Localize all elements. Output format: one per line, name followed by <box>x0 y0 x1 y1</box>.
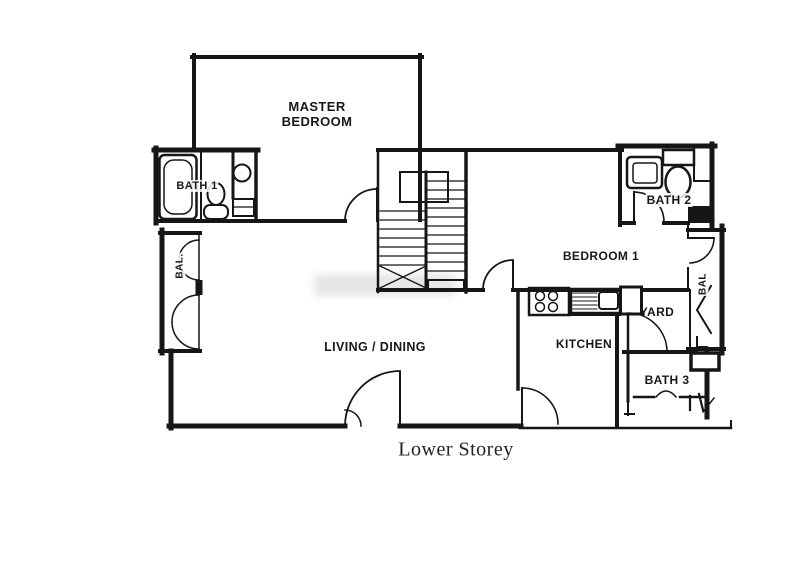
bedroom1-door-arc <box>483 260 513 290</box>
bath3-label: BATH 3 <box>644 373 691 387</box>
bedroom1-label: BEDROOM 1 <box>563 249 639 263</box>
balcony-left-walls <box>160 230 203 353</box>
bath2-sink-icon <box>627 157 662 188</box>
yard-label: YARD <box>640 305 675 319</box>
balcony-right-door-arc <box>690 238 714 263</box>
floor-plan-caption: Lower Storey <box>398 439 513 462</box>
bath2-toilet-icon <box>663 150 694 198</box>
wash-basin-icon <box>233 165 254 217</box>
kitchen-label: KITCHEN <box>556 337 612 351</box>
balcony-left-label: BAL. <box>175 252 186 279</box>
yard-walls <box>621 287 697 352</box>
master-bedroom-door-arc <box>345 188 377 221</box>
balcony-right-label: BAL <box>698 272 709 296</box>
staircase <box>378 150 622 292</box>
living-dining-walls <box>169 351 731 428</box>
kitchen-sink-icon <box>571 289 620 313</box>
bath1-label: BATH 1 <box>175 180 218 192</box>
master-bedroom-label: MASTER BEDROOM <box>261 100 373 130</box>
kitchen-door-arc <box>522 388 558 424</box>
floor-plan-drawing <box>0 0 800 566</box>
stove-icon <box>529 288 569 315</box>
bath2-label: BATH 2 <box>646 193 693 207</box>
entrance-door-arc <box>345 371 400 426</box>
floor-plan: MASTER BEDROOM BATH 1 BATH 2 BATH 3 BEDR… <box>0 0 800 566</box>
living-dining-label: LIVING / DINING <box>324 340 426 354</box>
